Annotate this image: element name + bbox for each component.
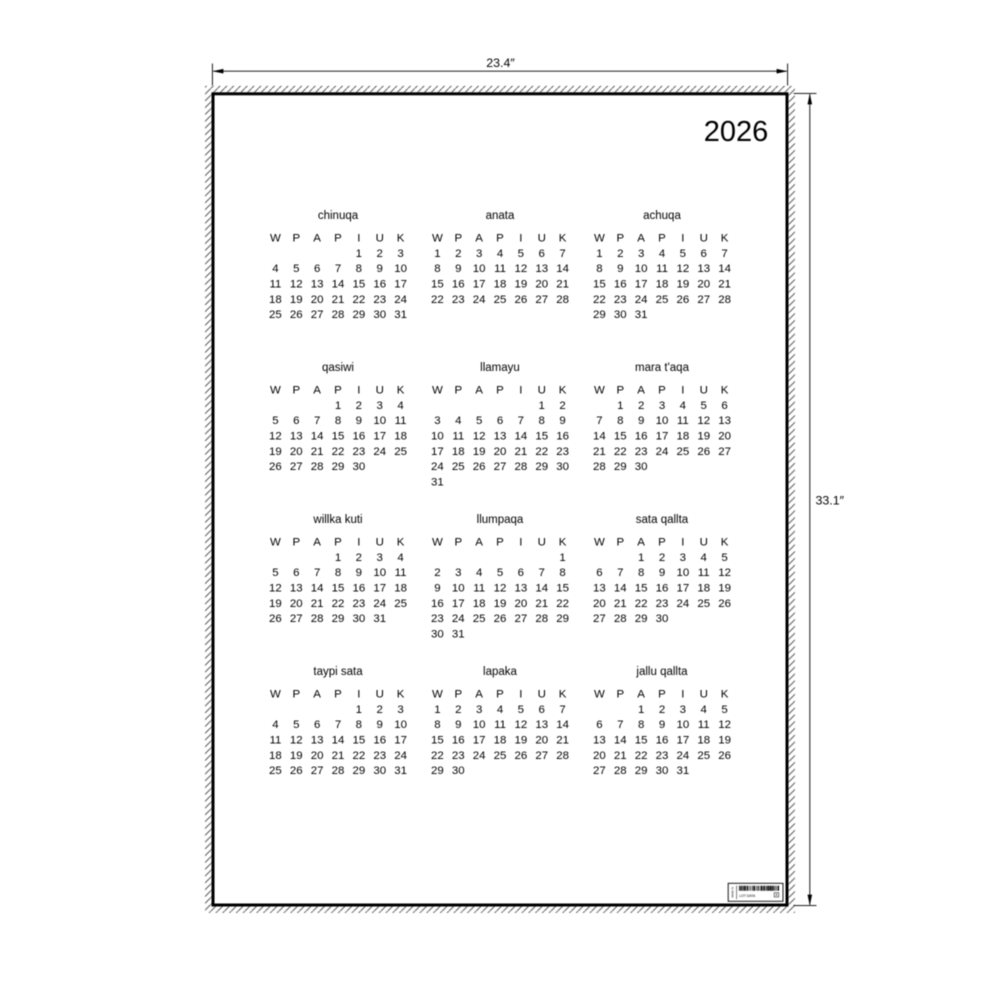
svg-text:293031: 293031 — [593, 309, 647, 321]
svg-text:MADE IN: MADE IN — [731, 887, 735, 898]
svg-text:31: 31 — [431, 477, 444, 489]
svg-text:2026: 2026 — [704, 116, 769, 148]
svg-text:taypi sata: taypi sata — [313, 666, 363, 678]
svg-text:282930: 282930 — [593, 461, 647, 473]
svg-text:qasiwi: qasiwi — [322, 362, 354, 374]
svg-text:jallu qallta: jallu qallta — [635, 666, 688, 678]
svg-text:llumpaqa: llumpaqa — [477, 514, 524, 526]
svg-text:chinuqa: chinuqa — [318, 210, 359, 222]
svg-text:anata: anata — [486, 210, 515, 222]
svg-text:33.1″: 33.1″ — [816, 493, 845, 507]
svg-text:achuqa: achuqa — [643, 210, 681, 222]
svg-text:llamayu: llamayu — [480, 362, 520, 374]
svg-text:lapaka: lapaka — [483, 666, 517, 678]
svg-text:willka kuti: willka kuti — [312, 514, 362, 526]
svg-text:1: 1 — [559, 552, 565, 564]
svg-text:mara t'aqa: mara t'aqa — [635, 362, 690, 374]
svg-text:LOT DATA: LOT DATA — [739, 894, 756, 898]
svg-text:23.4″: 23.4″ — [486, 56, 515, 70]
svg-text:sata qallta: sata qallta — [636, 514, 689, 526]
